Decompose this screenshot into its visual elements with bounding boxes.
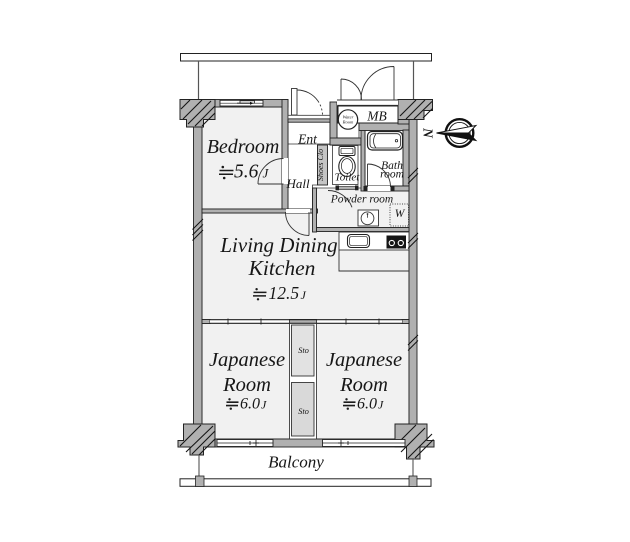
svg-text:12.5: 12.5 (269, 283, 300, 303)
svg-text:Sto: Sto (298, 406, 309, 416)
svg-text:room: room (380, 169, 404, 181)
svg-text:Room: Room (339, 374, 388, 396)
svg-text:J: J (261, 397, 267, 411)
svg-text:J: J (378, 397, 384, 411)
svg-text:MB: MB (366, 108, 387, 123)
svg-text:Ent: Ent (297, 132, 318, 147)
svg-text:Kitchen: Kitchen (248, 256, 316, 280)
svg-text:Japanese: Japanese (326, 349, 402, 371)
svg-text:Living Dining: Living Dining (219, 233, 337, 257)
svg-text:Room: Room (222, 374, 271, 396)
svg-text:W: W (395, 208, 406, 220)
svg-text:Bedroom: Bedroom (207, 136, 280, 158)
svg-text:Japanese: Japanese (209, 349, 285, 371)
svg-text:6.0: 6.0 (357, 395, 377, 412)
svg-text:Hall: Hall (285, 176, 310, 191)
svg-text:6.0: 6.0 (240, 395, 260, 412)
svg-text:5.6: 5.6 (234, 162, 259, 183)
svg-text:Sto: Sto (298, 345, 309, 355)
svg-text:N: N (421, 127, 436, 139)
svg-text:Balcony: Balcony (268, 453, 324, 472)
svg-text:Room: Room (342, 120, 354, 125)
svg-text:Powder room: Powder room (330, 194, 394, 206)
svg-text:Shoes Clo: Shoes Clo (316, 149, 325, 181)
svg-text:J: J (301, 288, 307, 302)
svg-text:Toilet: Toilet (335, 172, 361, 184)
